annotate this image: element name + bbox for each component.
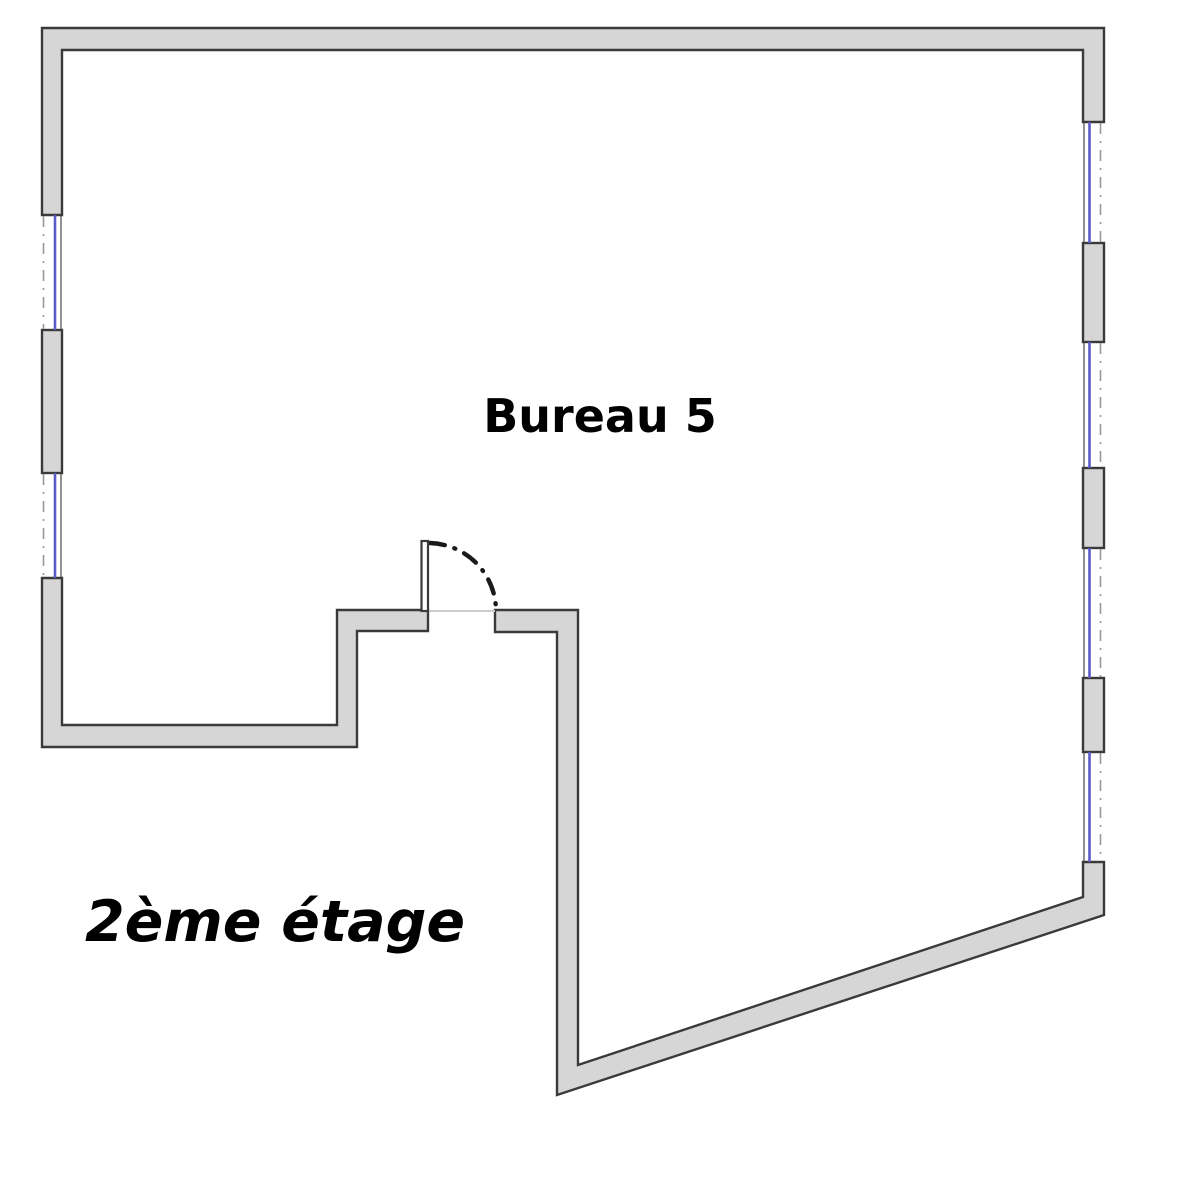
window-right-4 [1084,752,1101,862]
wall-right-pier-2 [1083,468,1104,548]
wall-bottom-left [42,578,428,747]
wall-bottom-right-diagonal [495,610,1104,1095]
window-right-2 [1084,342,1101,468]
window-right-3 [1084,548,1101,678]
wall-right-pier-3 [1083,678,1104,752]
floorplan-canvas: Bureau 5 2ème étage [0,0,1177,1200]
door-swing-arc-icon [430,543,496,611]
window-left-1 [44,215,62,330]
floorplan-svg: Bureau 5 2ème étage [0,0,1177,1200]
wall-top [42,28,1104,215]
door-leaf [422,541,429,611]
wall-left-pier-middle [42,330,62,473]
floor-label: 2ème étage [85,889,465,955]
room-label: Bureau 5 [483,389,717,443]
door [422,541,497,611]
window-left-2 [44,473,62,578]
wall-right-pier-1 [1083,243,1104,342]
window-right-1 [1084,122,1101,243]
